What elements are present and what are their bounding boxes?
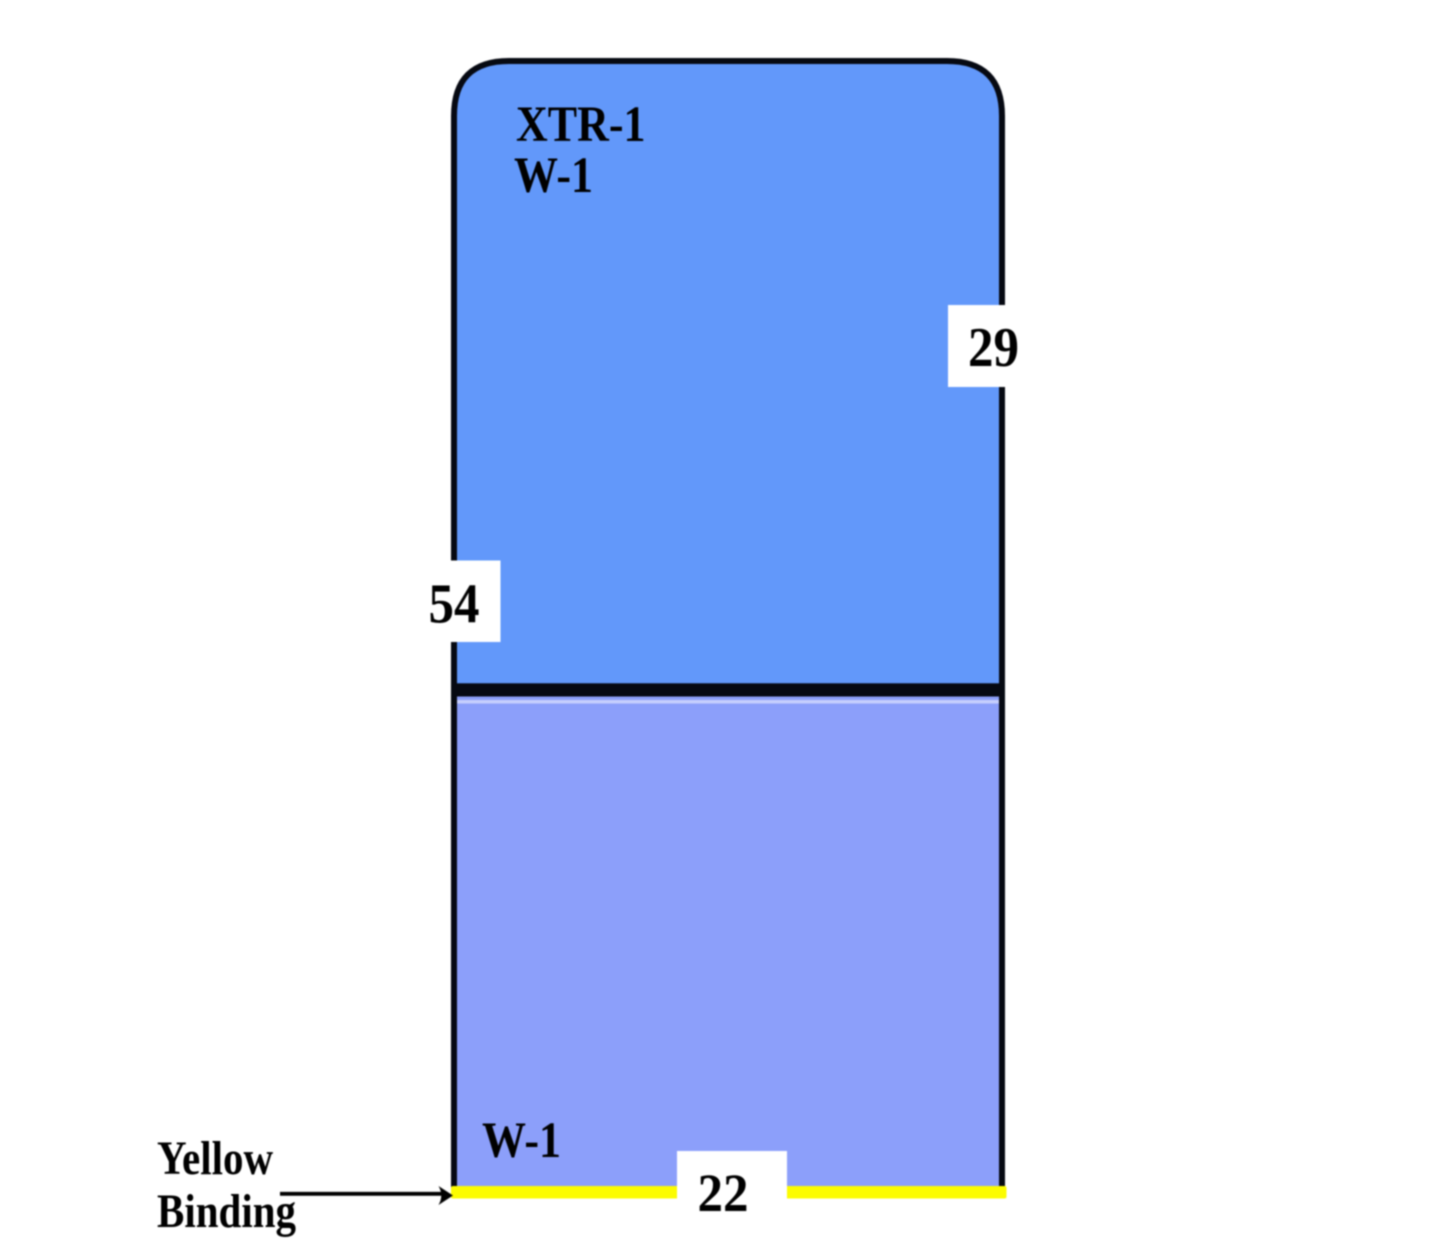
svg-text:W-1: W-1 xyxy=(514,148,593,203)
svg-text:W-1: W-1 xyxy=(482,1113,561,1168)
svg-text:Binding: Binding xyxy=(157,1185,296,1237)
svg-text:Yellow: Yellow xyxy=(157,1132,273,1184)
svg-text:XTR-1: XTR-1 xyxy=(516,97,646,152)
svg-text:22: 22 xyxy=(698,1164,749,1224)
svg-text:54: 54 xyxy=(429,572,480,635)
svg-text:29: 29 xyxy=(968,316,1019,379)
